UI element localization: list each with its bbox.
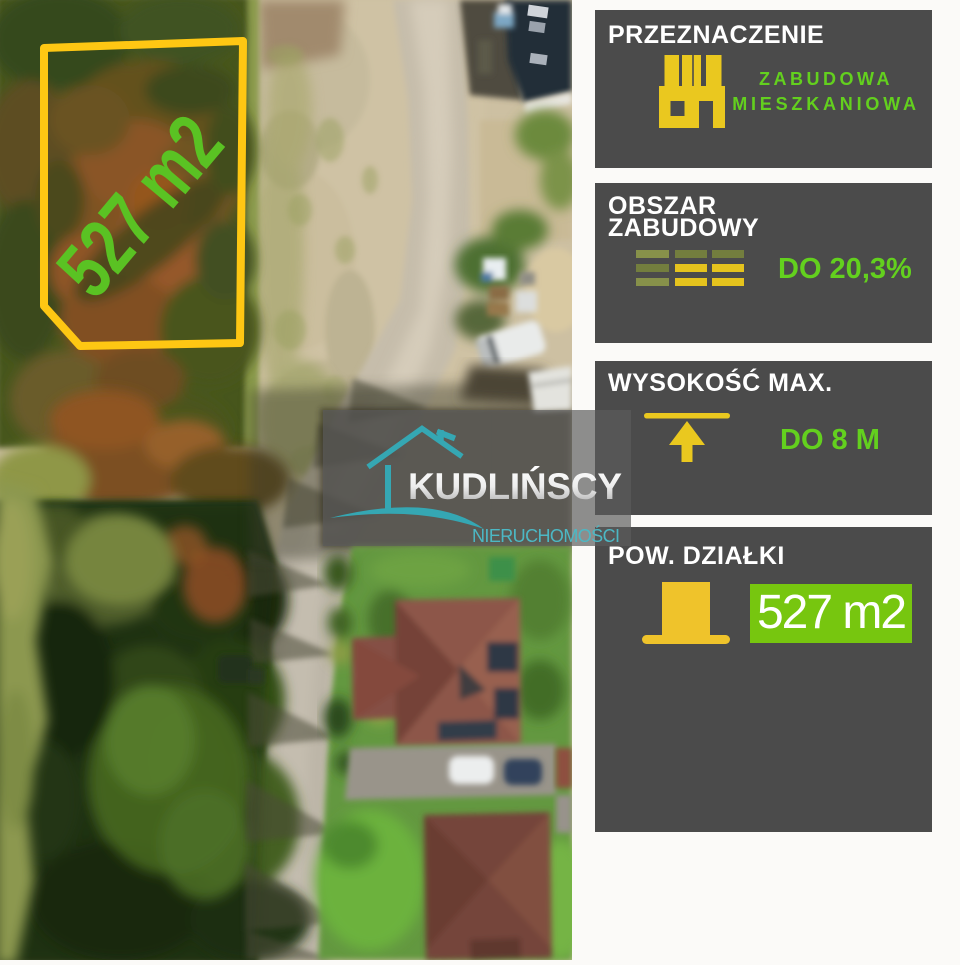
svg-text:KUDLIŃSCY: KUDLIŃSCY bbox=[408, 466, 622, 507]
svg-text:NIERUCHOMOŚCI: NIERUCHOMOŚCI bbox=[472, 525, 620, 546]
